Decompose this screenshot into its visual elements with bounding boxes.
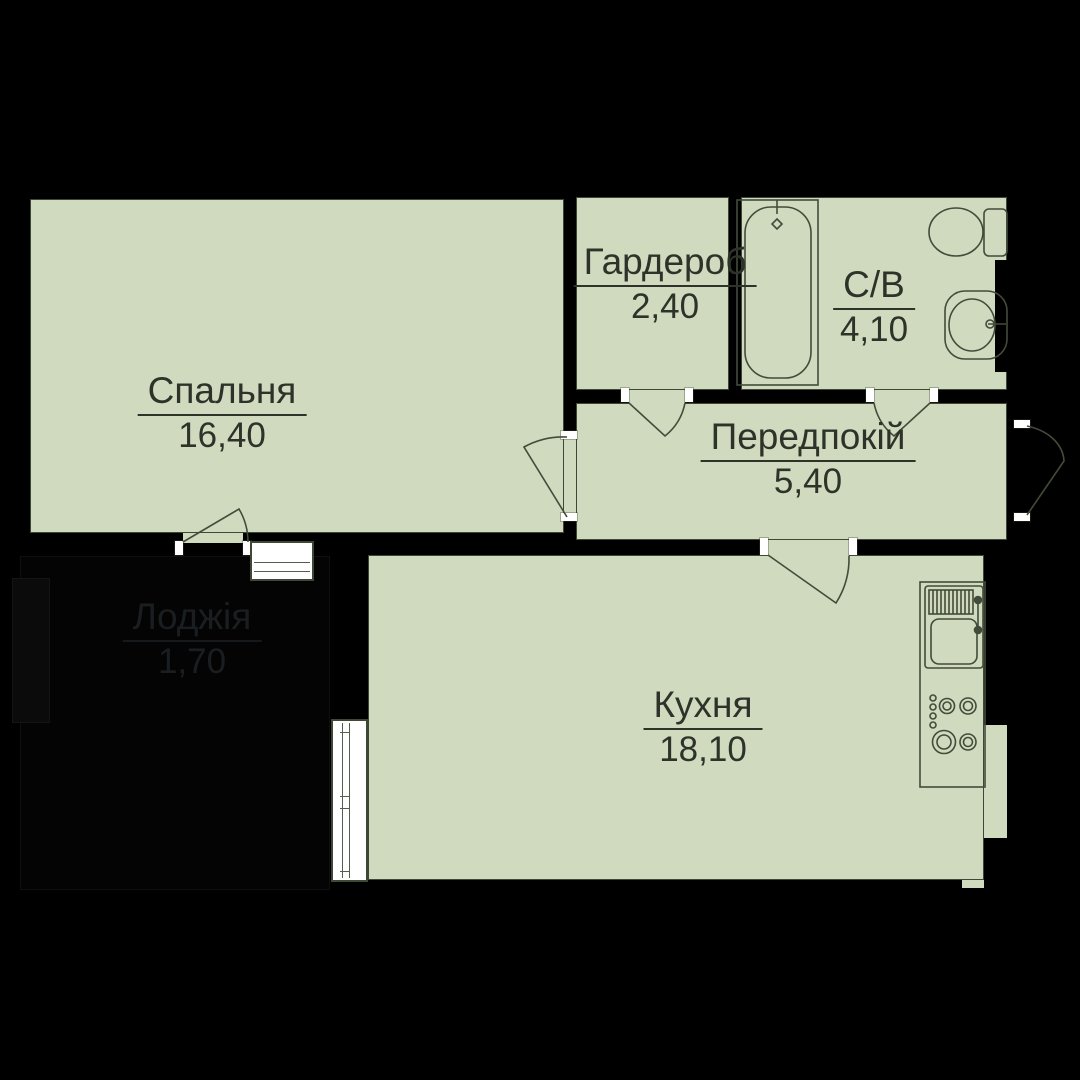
room-name: Гардероб: [574, 243, 757, 287]
loggia-window-icon: [12, 578, 50, 723]
fixtures-layer: [0, 0, 1080, 1080]
jamb-tick: [849, 538, 857, 555]
jamb-tick: [1014, 513, 1030, 521]
doorway-bedroom-hallway: [564, 439, 576, 515]
label-bedroom: Спальня 16,40: [138, 372, 307, 456]
kitchen-window-icon: [331, 719, 368, 882]
jamb-tick: [760, 538, 768, 555]
jamb-tick: [1014, 420, 1030, 428]
balcony-door-window-icon: [250, 541, 314, 581]
kitchen-wall-step: [962, 880, 984, 888]
window-glazing: [254, 562, 310, 572]
room-area: 1,70: [158, 642, 226, 681]
window-tick: [340, 871, 350, 872]
window-tick: [340, 796, 350, 797]
jamb-tick: [685, 388, 693, 402]
window-tick: [340, 808, 350, 809]
jamb-tick: [561, 513, 577, 521]
room-area: 18,10: [659, 730, 747, 769]
floor-plan: Спальня 16,40 Гардероб 2,40 С/В 4,10 Пер…: [0, 0, 1080, 1080]
label-loggia: Лоджія 1,70: [123, 598, 262, 682]
doorway-bedroom-loggia: [183, 533, 243, 543]
room-area: 2,40: [631, 287, 699, 326]
label-kitchen: Кухня 18,10: [643, 686, 762, 770]
jamb-tick: [866, 388, 874, 402]
kitchen-wall-notch: [984, 725, 1007, 838]
vent-shaft-icon: [995, 260, 1015, 372]
window-glazing: [342, 723, 350, 878]
jamb-tick: [561, 431, 577, 439]
label-wardrobe: Гардероб 2,40: [574, 243, 757, 327]
entrance-door-icon: [1027, 426, 1064, 515]
doorway-hallway-kitchen: [768, 540, 849, 556]
room-name: Лоджія: [123, 598, 262, 642]
room-bedroom: [30, 199, 564, 533]
room-name: Спальня: [138, 372, 307, 416]
label-hallway: Передпокій 5,40: [701, 418, 916, 502]
room-area: 4,10: [840, 310, 908, 349]
jamb-tick: [930, 388, 938, 402]
room-name: Кухня: [643, 686, 762, 730]
room-area: 5,40: [774, 462, 842, 501]
room-area: 16,40: [178, 416, 266, 455]
doorway-bathroom-hallway: [874, 390, 930, 404]
window-tick: [340, 732, 350, 733]
room-name: С/В: [833, 266, 915, 310]
room-name: Передпокій: [701, 418, 916, 462]
jamb-tick: [621, 388, 629, 402]
doorway-wardrobe-hallway: [629, 390, 685, 404]
jamb-tick: [175, 541, 183, 555]
label-bathroom: С/В 4,10: [833, 266, 915, 350]
